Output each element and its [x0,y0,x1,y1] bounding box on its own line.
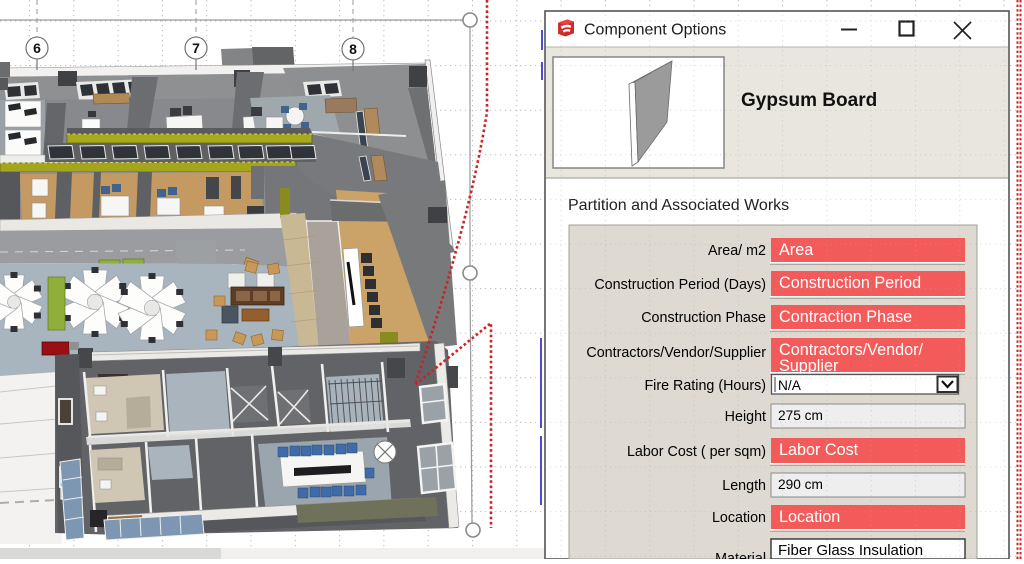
svg-text:Construction Period (Days): Construction Period (Days) [594,277,766,293]
svg-text:N/A: N/A [778,378,802,393]
svg-text:Construction Period: Construction Period [779,274,921,292]
svg-text:Gypsum Board: Gypsum Board [741,90,877,111]
svg-text:Area/ m2: Area/ m2 [708,243,766,259]
svg-text:Location: Location [779,508,840,526]
svg-text:Length: Length [722,478,766,494]
svg-text:Labor Cost: Labor Cost [779,441,859,459]
svg-text:290 cm: 290 cm [778,477,823,492]
svg-text:Location: Location [712,510,766,526]
svg-text:6: 6 [33,40,41,56]
svg-text:Fire Rating (Hours): Fire Rating (Hours) [644,378,766,394]
svg-text:7: 7 [192,40,200,56]
svg-text:8: 8 [349,41,357,57]
svg-text:Supplier: Supplier [779,357,839,375]
svg-text:275 cm: 275 cm [778,408,823,423]
svg-text:Construction Phase: Construction Phase [641,310,766,326]
svg-text:Material: Material [715,551,766,559]
svg-text:Contractors/Vendor/Supplier: Contractors/Vendor/Supplier [586,345,766,361]
svg-text:Labor Cost ( per sqm): Labor Cost ( per sqm) [627,444,766,460]
svg-text:Contraction Phase: Contraction Phase [779,308,912,326]
